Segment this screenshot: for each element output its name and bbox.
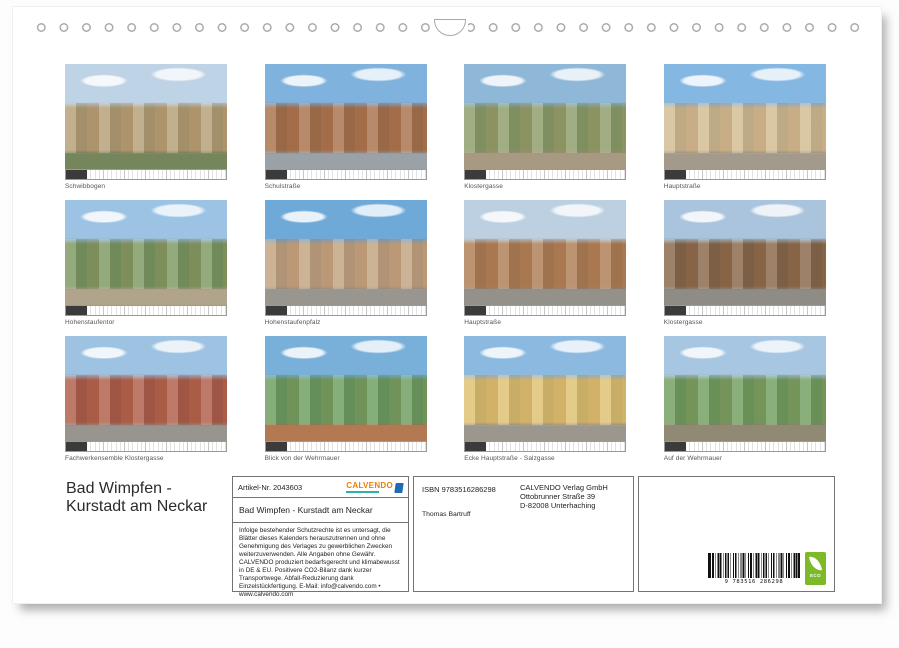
- author-name: Thomas Bartruff: [422, 511, 471, 518]
- publisher-line: Ottobrunner Straße 39: [520, 492, 595, 501]
- mini-calendar-strip: [664, 305, 826, 316]
- photo-placeholder: [65, 64, 227, 169]
- calvendo-book-icon: [394, 483, 403, 493]
- mini-calendar-strip: [464, 169, 626, 180]
- photo-placeholder: [265, 200, 427, 305]
- photo-placeholder: [265, 336, 427, 441]
- calendar-thumbnail: Klostergasse: [464, 64, 626, 191]
- thumbnails-grid: Schwibbogen Schulstraße Klostergasse Hau…: [65, 64, 826, 463]
- mini-month-label: [465, 306, 486, 315]
- mini-month-label: [66, 170, 87, 179]
- photo-placeholder: [464, 336, 626, 441]
- thumbnail-caption: Schwibbogen: [65, 183, 227, 191]
- mini-month-label: [266, 442, 287, 451]
- calendar-thumbnail: Hauptstraße: [464, 200, 626, 327]
- mini-calendar-strip: [265, 169, 427, 180]
- thumbnail-caption: Hauptstraße: [664, 183, 826, 191]
- photo-placeholder: [265, 64, 427, 169]
- calendar-title-row: Bad Wimpfen - Kurstadt am Neckar: [233, 498, 408, 523]
- photo-placeholder: [65, 336, 227, 441]
- mini-month-label: [665, 442, 686, 451]
- calendar-thumbnail: Blick von der Wehrmauer: [265, 336, 427, 463]
- product-title: Bad Wimpfen - Kurstadt am Neckar: [66, 480, 236, 515]
- barcode-digits: 9 783516 286298: [725, 579, 784, 585]
- mini-month-label: [66, 306, 87, 315]
- mini-month-label: [665, 306, 686, 315]
- publisher-line: D-82008 Unterhaching: [520, 501, 595, 510]
- product-title-line2: Kurstadt am Neckar: [66, 498, 207, 515]
- mini-month-label: [266, 306, 287, 315]
- photo-placeholder: [464, 64, 626, 169]
- artikel-number: Artikel-Nr. 2043603: [238, 483, 302, 492]
- mini-calendar-strip: [65, 305, 227, 316]
- eco-label: ECO: [810, 573, 821, 578]
- calvendo-logo-stack: CALVENDO: [346, 482, 393, 493]
- info-box-left: Artikel-Nr. 2043603 CALVENDO Bad Wimpfen…: [232, 476, 409, 592]
- info-box-right: 9 783516 286298 ECO: [638, 476, 835, 592]
- calendar-thumbnail: Hohenstaufentor: [65, 200, 227, 327]
- mini-calendar-strip: [464, 305, 626, 316]
- calendar-thumbnail: Fachwerkensemble Klostergasse: [65, 336, 227, 463]
- photo-placeholder: [65, 200, 227, 305]
- thumbnail-caption: Hohenstaufentor: [65, 319, 227, 327]
- mini-month-label: [665, 170, 686, 179]
- thumbnail-caption: Hohenstaufenpfalz: [265, 319, 427, 327]
- mini-month-label: [66, 442, 87, 451]
- leaf-icon: [809, 555, 822, 571]
- mini-calendar-strip: [65, 169, 227, 180]
- calvendo-logo-tagline: [346, 491, 379, 493]
- photo-placeholder: [664, 200, 826, 305]
- thumbnail-caption: Klostergasse: [464, 183, 626, 191]
- mini-month-label: [465, 170, 486, 179]
- mini-calendar-strip: [65, 441, 227, 452]
- calendar-thumbnail: Ecke Hauptstraße - Salzgasse: [464, 336, 626, 463]
- info-box-middle: ISBN 9783516286298 CALVENDO Verlag GmbH …: [413, 476, 634, 592]
- thumbnail-caption: Hauptstraße: [464, 319, 626, 327]
- artikel-row: Artikel-Nr. 2043603 CALVENDO: [233, 477, 408, 498]
- calendar-title: Bad Wimpfen - Kurstadt am Neckar: [239, 505, 373, 515]
- photo-placeholder: [464, 200, 626, 305]
- thumbnail-caption: Auf der Wehrmauer: [664, 455, 826, 463]
- isbn: ISBN 9783516286298: [422, 485, 496, 494]
- calendar-thumbnail: Hohenstaufenpfalz: [265, 200, 427, 327]
- thumbnail-caption: Ecke Hauptstraße - Salzgasse: [464, 455, 626, 463]
- thumbnail-caption: Fachwerkensemble Klostergasse: [65, 455, 227, 463]
- photo-placeholder: [664, 64, 826, 169]
- mini-month-label: [266, 170, 287, 179]
- mini-calendar-strip: [664, 441, 826, 452]
- mini-calendar-strip: [265, 441, 427, 452]
- mini-calendar-strip: [664, 169, 826, 180]
- barcode: 9 783516 286298: [708, 553, 800, 585]
- calvendo-logo: CALVENDO: [346, 482, 403, 493]
- calendar-thumbnail: Schwibbogen: [65, 64, 227, 191]
- calvendo-logo-text: CALVENDO: [346, 482, 393, 490]
- calendar-thumbnail: Schulstraße: [265, 64, 427, 191]
- mini-calendar-strip: [464, 441, 626, 452]
- mini-calendar-strip: [265, 305, 427, 316]
- product-title-line1: Bad Wimpfen -: [66, 480, 172, 497]
- mini-month-label: [465, 442, 486, 451]
- barcode-area: 9 783516 286298 ECO: [708, 552, 826, 585]
- photo-placeholder: [664, 336, 826, 441]
- calendar-thumbnail: Hauptstraße: [664, 64, 826, 191]
- thumbnail-caption: Klostergasse: [664, 319, 826, 327]
- eco-badge: ECO: [805, 552, 826, 585]
- barcode-bars-icon: [708, 553, 800, 578]
- thumbnail-caption: Blick von der Wehrmauer: [265, 455, 427, 463]
- publisher-address: CALVENDO Verlag GmbH Ottobrunner Straße …: [520, 483, 608, 510]
- thumbnail-caption: Schulstraße: [265, 183, 427, 191]
- legal-text: Infolge bestehender Schutzrechte ist es …: [233, 523, 408, 603]
- calendar-thumbnail: Klostergasse: [664, 200, 826, 327]
- calendar-thumbnail: Auf der Wehrmauer: [664, 336, 826, 463]
- publisher-line: CALVENDO Verlag GmbH: [520, 483, 608, 492]
